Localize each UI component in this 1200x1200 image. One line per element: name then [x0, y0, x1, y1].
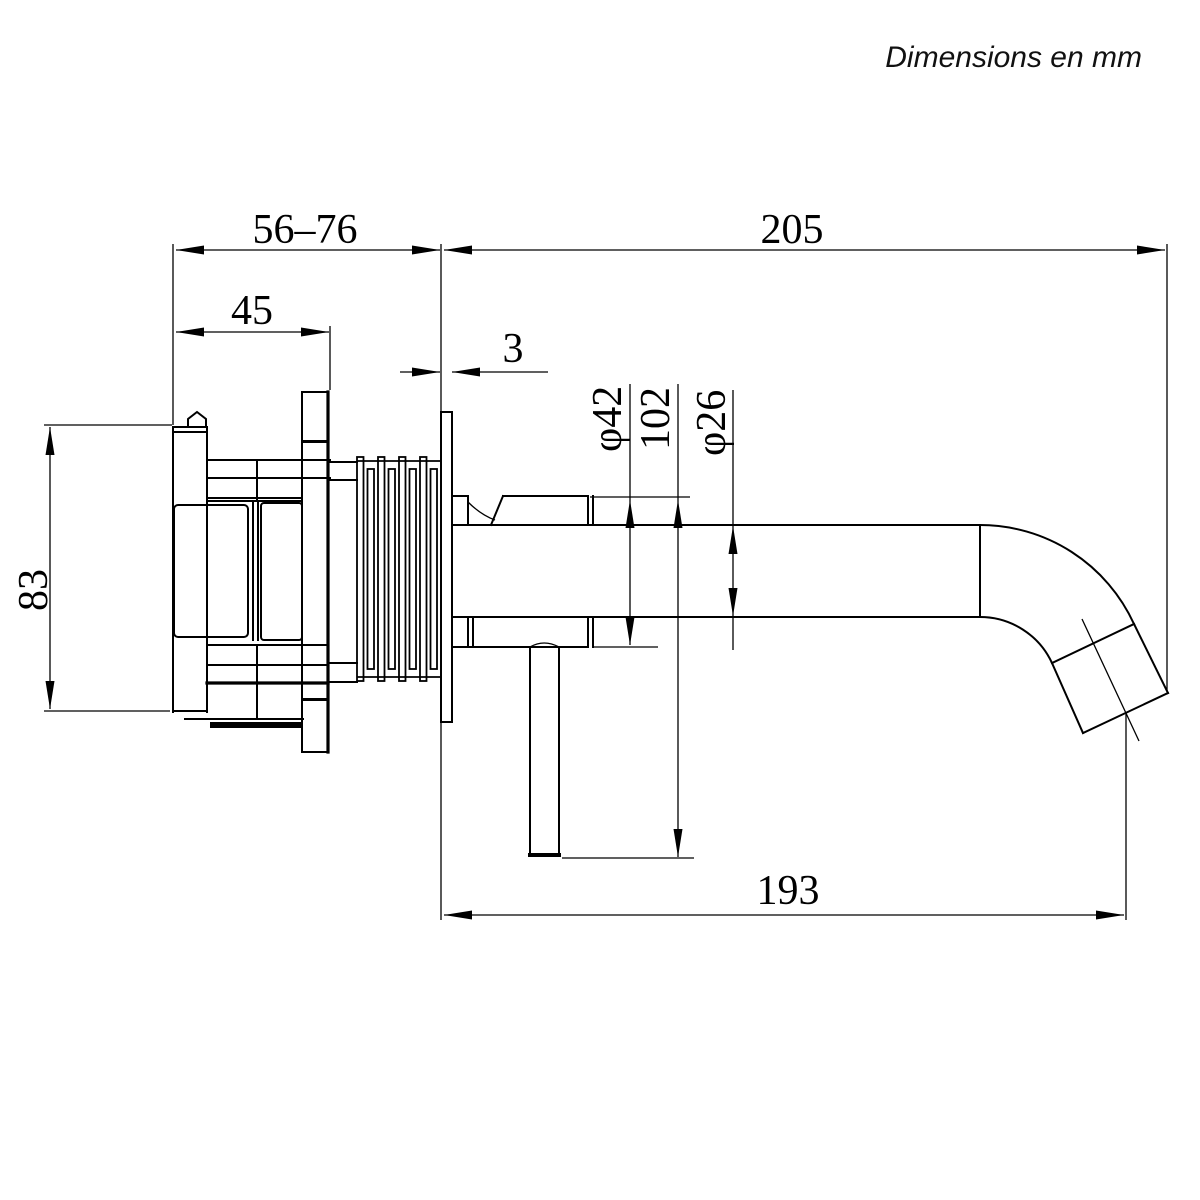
dimension-spout-reach: 193	[441, 713, 1126, 920]
dimension-body-width: 45	[176, 288, 330, 390]
dim-label-escutcheon-diameter: φ42	[585, 386, 631, 452]
dimension-total-projection: 205	[444, 207, 1167, 691]
units-note: Dimensions en mm	[885, 41, 1142, 74]
left-window	[174, 505, 248, 637]
wall-plate-rect	[441, 412, 452, 722]
dim-label-body-height: 83	[11, 569, 57, 611]
technical-drawing-page: 56–76 205 45 3 83 φ42 102	[0, 0, 1200, 1200]
dimension-plate-thickness: 3	[400, 326, 548, 372]
dim-label-handle-height: 102	[633, 387, 679, 450]
base-bar	[210, 722, 303, 728]
dimension-spout-diameter: φ26	[689, 390, 735, 650]
spout-axis-line	[1082, 619, 1139, 741]
escutcheon	[452, 496, 593, 647]
dim-label-total-projection: 205	[761, 207, 824, 253]
dim-label-plate-thickness: 3	[503, 326, 524, 372]
handle-lever	[528, 643, 561, 857]
bleed-screw-tab	[188, 412, 206, 427]
right-window	[261, 503, 302, 640]
dim-label-spout-diameter: φ26	[689, 390, 735, 456]
wall-plate	[441, 412, 452, 722]
dim-label-installation-depth: 56–76	[253, 207, 358, 253]
dim-label-body-width: 45	[231, 288, 273, 334]
thread-section	[357, 457, 440, 681]
dimension-body-height: 83	[11, 425, 172, 711]
dim-label-spout-reach: 193	[757, 868, 820, 914]
faucet-dimension-drawing: 56–76 205 45 3 83 φ42 102	[0, 0, 1200, 1200]
handle-end-cap	[528, 853, 561, 857]
dimension-handle-height: 102	[562, 384, 694, 858]
